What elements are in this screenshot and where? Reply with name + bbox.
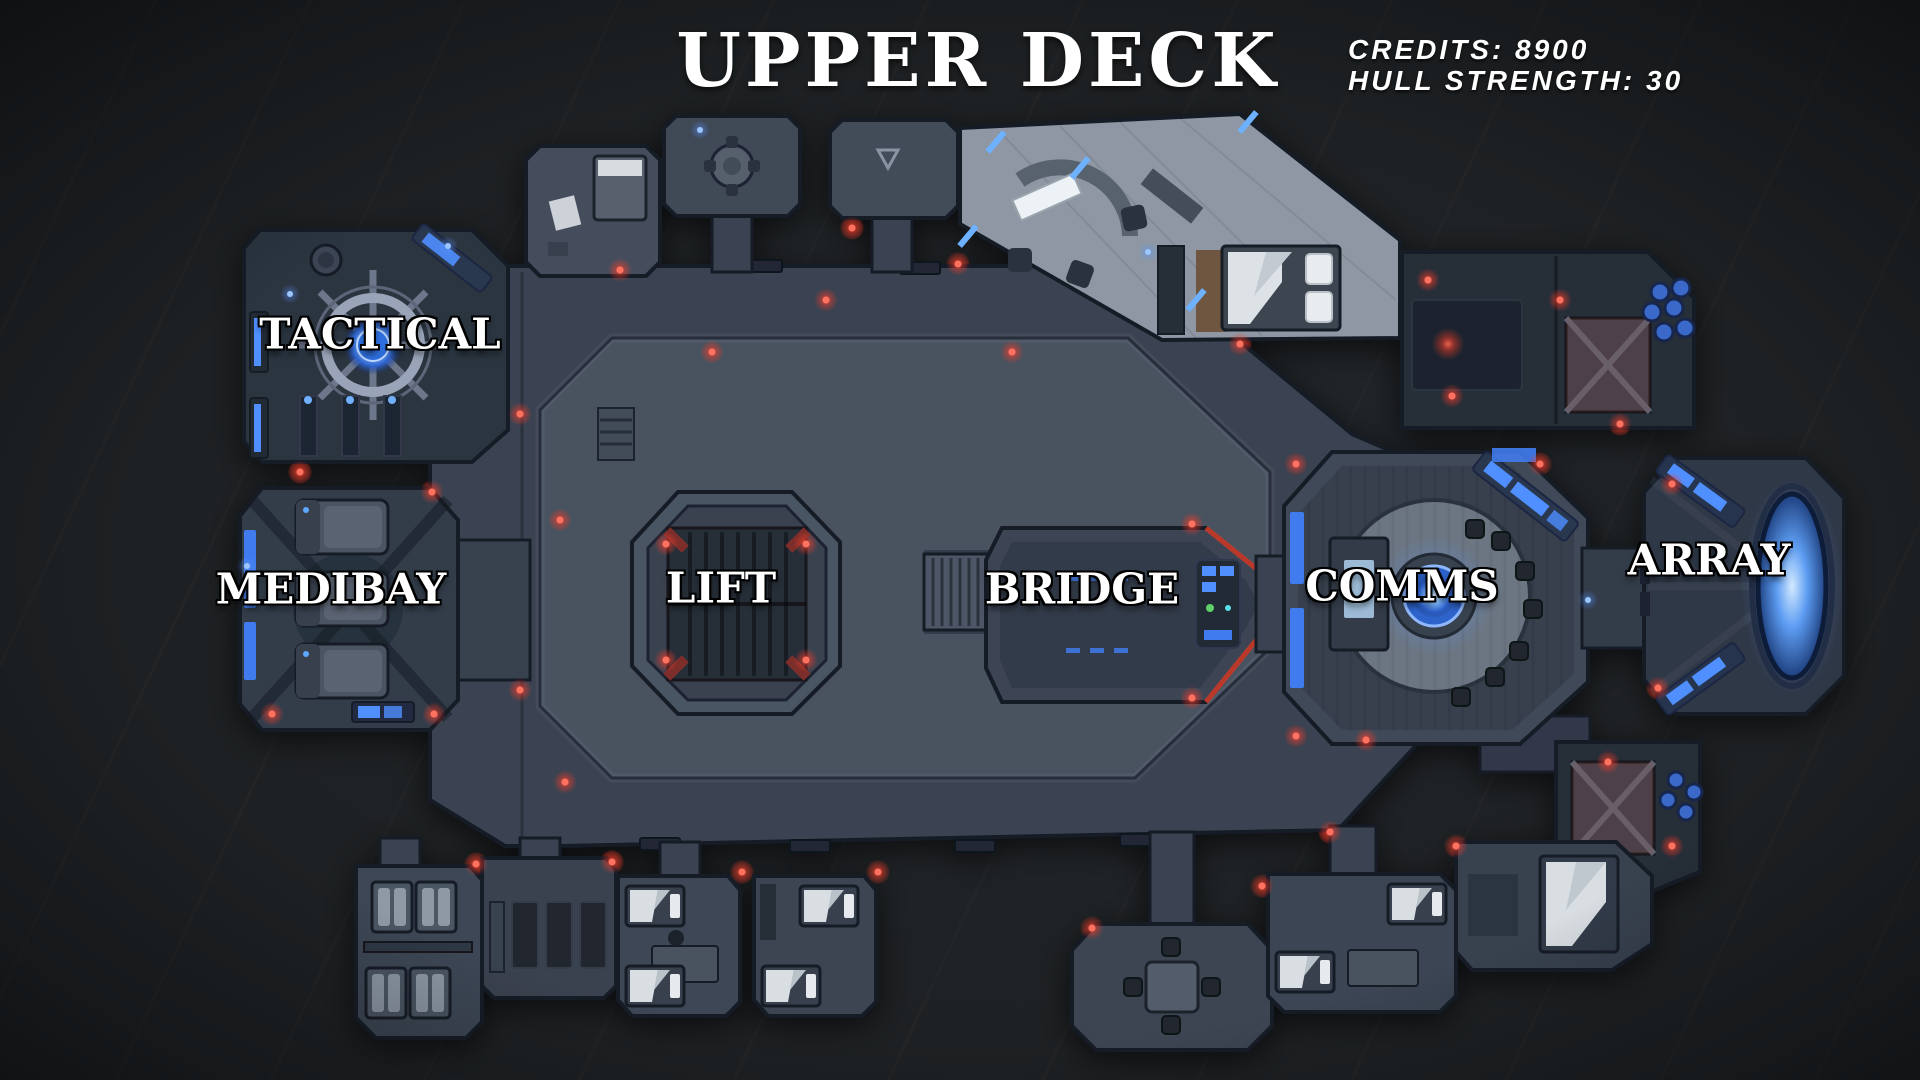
comms-wall-screen (1290, 512, 1304, 584)
room-crew-b[interactable] (754, 876, 876, 1016)
room-top-table[interactable] (664, 116, 800, 216)
room-label-bridge[interactable]: BRIDGE (985, 565, 1179, 614)
hud-hull-strength: HULL STRENGTH: 30 (1348, 65, 1683, 96)
hud-credits: CREDITS: 8900 (1348, 34, 1683, 65)
room-label-tactical[interactable]: TACTICAL (259, 310, 500, 359)
game-screen: UPPER DECK CREDITS: 8900 HULL STRENGTH: … (0, 0, 1920, 1080)
deck-title: UPPER DECK (676, 18, 1279, 104)
room-label-lift[interactable]: LIFT (666, 564, 776, 613)
deck-hatch (598, 408, 634, 460)
room-table-octagon[interactable] (1072, 924, 1272, 1050)
array-dish (1758, 494, 1826, 678)
room-quarters-right[interactable] (1456, 842, 1652, 970)
room-crew-a[interactable] (618, 876, 740, 1016)
room-label-comms[interactable]: COMMS (1305, 562, 1498, 611)
weapon-racks (300, 396, 401, 456)
hud-stats: CREDITS: 8900 HULL STRENGTH: 30 (1348, 34, 1683, 96)
room-mess[interactable] (356, 866, 482, 1038)
room-label-medibay[interactable]: MEDIBAY (216, 565, 447, 614)
bridge-stairs (924, 550, 990, 634)
room-lockers[interactable] (482, 858, 616, 998)
room-top-store[interactable] (830, 120, 958, 218)
room-label-array[interactable]: ARRAY (1628, 536, 1791, 585)
bridge-console (1196, 560, 1240, 648)
room-crew-c[interactable] (1268, 874, 1456, 1012)
